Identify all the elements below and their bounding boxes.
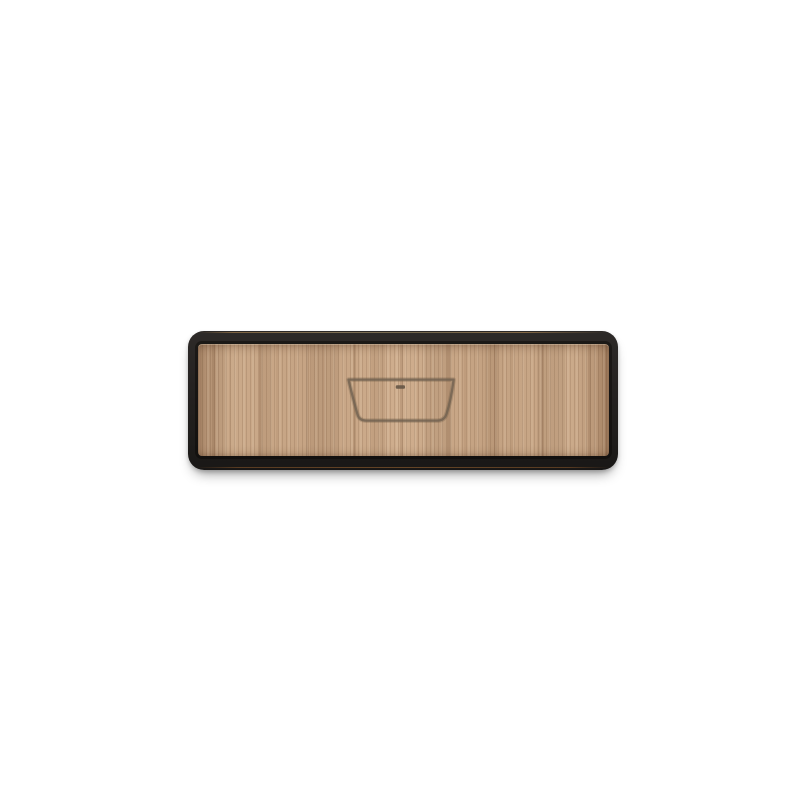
plaque-frame — [188, 331, 618, 470]
wood-veneer-panel — [198, 344, 609, 456]
render-canvas — [0, 0, 807, 807]
